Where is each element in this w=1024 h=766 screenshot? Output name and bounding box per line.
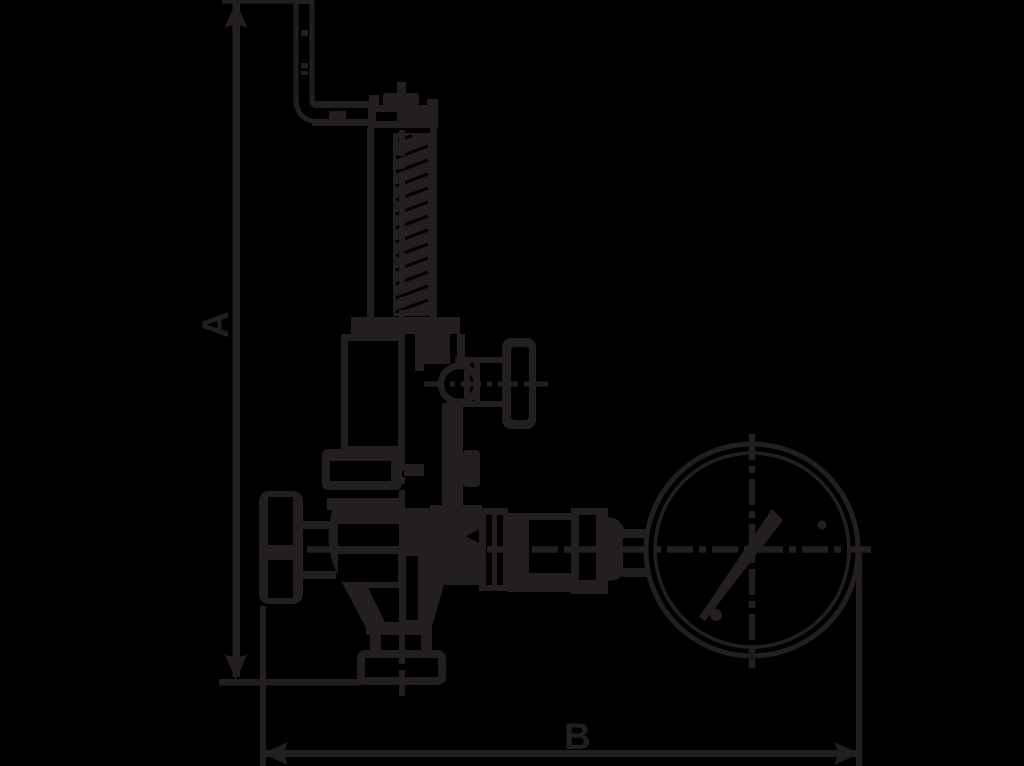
svg-text:B: B [564,716,591,757]
svg-text:A: A [195,311,236,338]
